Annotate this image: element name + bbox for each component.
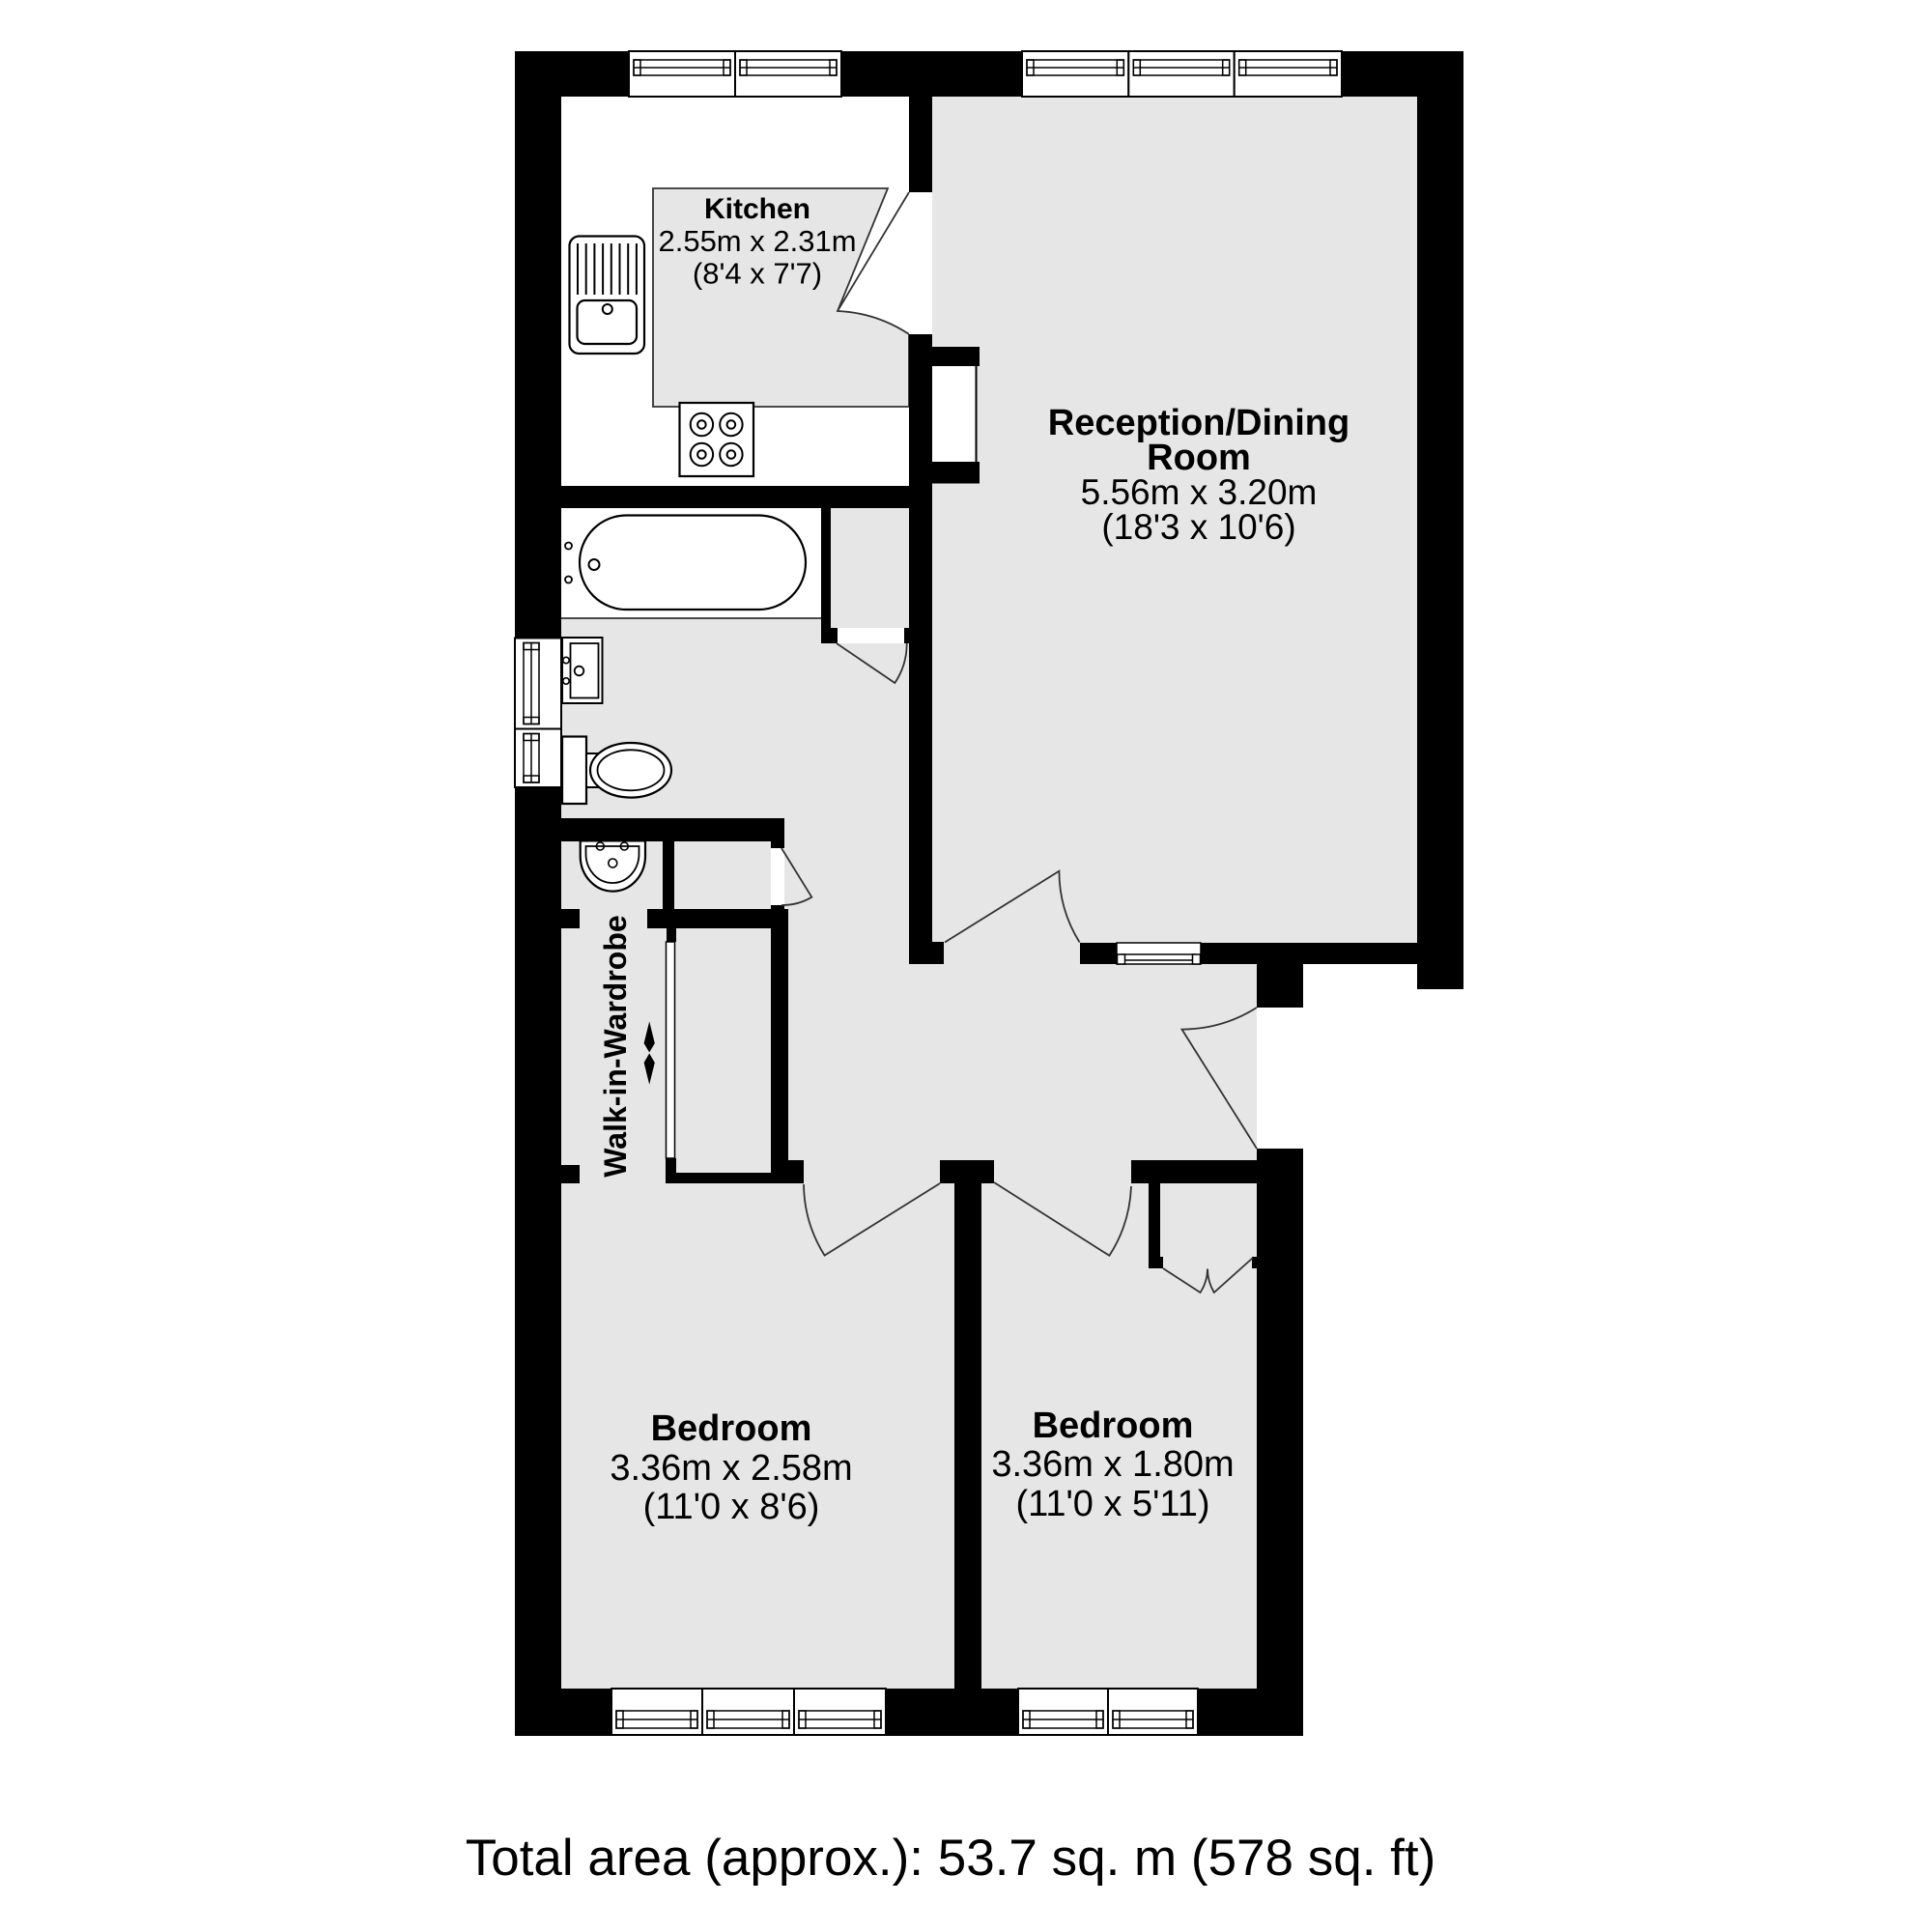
svg-text:(11'0 x 8'6): (11'0 x 8'6)	[643, 1487, 820, 1527]
svg-text:Bedroom: Bedroom	[651, 1408, 812, 1449]
svg-text:3.36m x 2.58m: 3.36m x 2.58m	[610, 1448, 852, 1489]
svg-text:Bedroom: Bedroom	[1033, 1406, 1194, 1446]
svg-text:(18'3 x 10'6): (18'3 x 10'6)	[1101, 507, 1295, 547]
svg-text:3.36m x 1.80m: 3.36m x 1.80m	[991, 1444, 1234, 1485]
svg-text:Kitchen: Kitchen	[704, 193, 810, 225]
svg-text:2.55m x 2.31m: 2.55m x 2.31m	[658, 224, 856, 258]
svg-text:5.56m x 3.20m: 5.56m x 3.20m	[1081, 472, 1318, 512]
svg-text:Walk-in-Wardrobe: Walk-in-Wardrobe	[598, 915, 633, 1177]
svg-text:(11'0 x 5'11): (11'0 x 5'11)	[1015, 1484, 1209, 1524]
svg-text:Total area (approx.): 53.7 sq.: Total area (approx.): 53.7 sq. m (578 sq…	[466, 1830, 1436, 1887]
svg-text:(8'4 x 7'7): (8'4 x 7'7)	[693, 257, 822, 291]
